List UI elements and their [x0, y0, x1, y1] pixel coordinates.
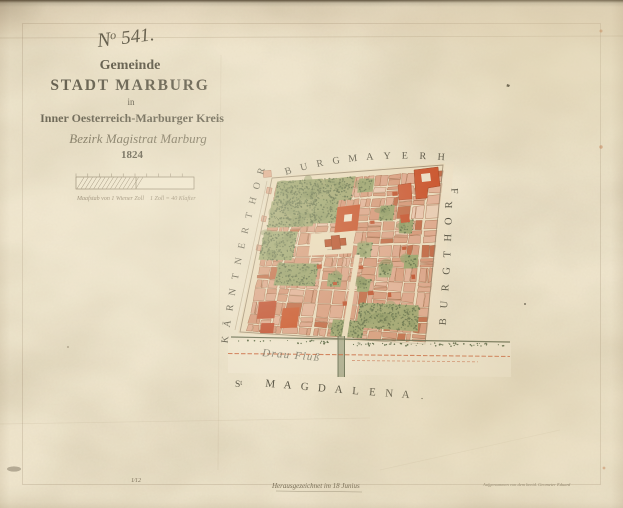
svg-text:B: B: [438, 318, 450, 326]
svg-text:U: U: [439, 300, 451, 309]
svg-text:G: G: [441, 266, 452, 275]
svg-text:M: M: [348, 153, 358, 165]
svg-text:R: R: [419, 151, 426, 162]
svg-text:H: H: [443, 233, 454, 241]
svg-text:E: E: [402, 151, 408, 162]
svg-text:L: L: [352, 385, 360, 398]
svg-text:R: R: [444, 201, 455, 208]
svg-text:1⁄12: 1⁄12: [131, 478, 141, 484]
svg-text:M: M: [265, 378, 276, 391]
svg-text:Gemeinde: Gemeinde: [100, 58, 161, 73]
svg-text:T: T: [442, 250, 453, 258]
svg-text:N: N: [385, 387, 394, 400]
svg-text:A: A: [283, 379, 292, 392]
svg-text:O: O: [443, 217, 454, 225]
svg-text:in: in: [127, 97, 135, 107]
svg-text:D: D: [317, 382, 326, 395]
svg-text:Maafstab von 1 Wiener Zoll: Maafstab von 1 Wiener Zoll 1 Zoll = 40 K…: [76, 195, 196, 202]
svg-text:A: A: [334, 384, 343, 397]
svg-text:STADT MARBURG: STADT MARBURG: [50, 77, 209, 94]
svg-text:Herausgezeichnet im 18 Junius: Herausgezeichnet im 18 Junius: [271, 482, 360, 490]
svg-text:F: F: [448, 188, 459, 194]
svg-text:K: K: [220, 335, 232, 344]
svg-text:E: E: [369, 386, 377, 398]
svg-text:A: A: [401, 389, 410, 402]
svg-text:Aufgenommen von dem beeid. Geo: Aufgenommen von dem beeid. Geometer Edua…: [482, 482, 571, 487]
svg-text:R: R: [440, 284, 451, 292]
svg-text:1824: 1824: [121, 149, 144, 161]
svg-text:G: G: [300, 381, 309, 394]
svg-text:Inner Oesterreich-Marburger Kr: Inner Oesterreich-Marburger Kreis: [40, 111, 224, 125]
svg-text:Y: Y: [383, 151, 391, 162]
svg-text:H: H: [437, 152, 445, 163]
svg-text:Bezirk Magistrat Marburg: Bezirk Magistrat Marburg: [69, 131, 207, 146]
